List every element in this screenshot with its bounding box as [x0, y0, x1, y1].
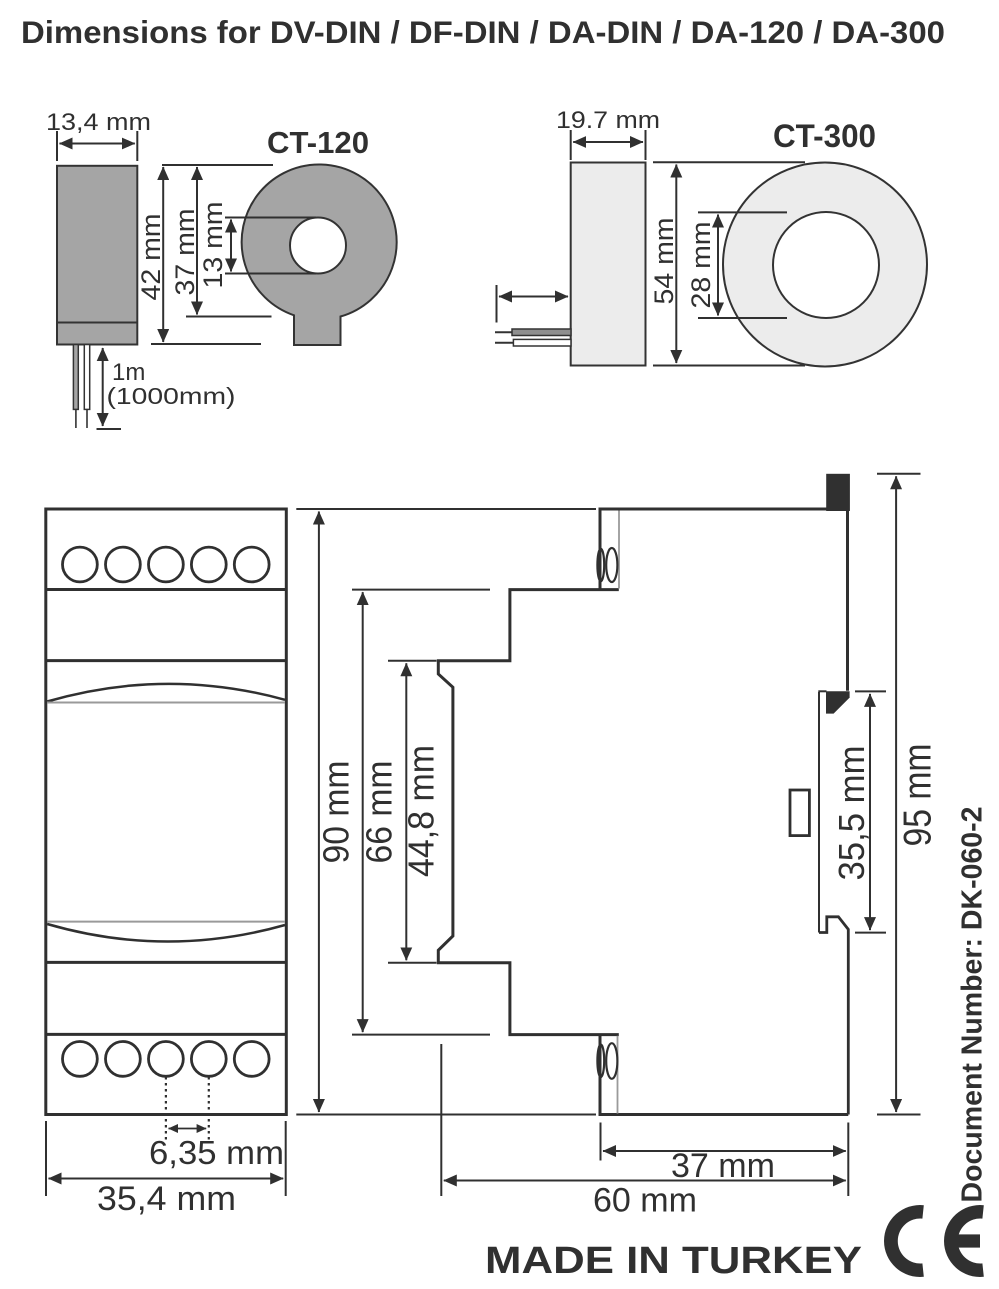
- svg-text:13,4 mm: 13,4 mm: [46, 109, 151, 136]
- svg-text:54 mm: 54 mm: [649, 218, 679, 305]
- svg-text:19.7 mm: 19.7 mm: [556, 107, 660, 134]
- svg-text:6,35 mm: 6,35 mm: [149, 1134, 284, 1171]
- svg-text:66 mm: 66 mm: [359, 761, 400, 864]
- svg-text:35,5 mm: 35,5 mm: [831, 746, 872, 881]
- svg-text:CT-300: CT-300: [773, 118, 876, 154]
- svg-text:35,4 mm: 35,4 mm: [97, 1180, 236, 1218]
- svg-text:1m: 1m: [112, 359, 145, 386]
- svg-text:(1000mm): (1000mm): [107, 383, 236, 409]
- svg-text:44,8 mm: 44,8 mm: [401, 745, 442, 877]
- svg-text:Dimensions for DV-DIN / DF-DIN: Dimensions for DV-DIN / DF-DIN / DA-DIN …: [21, 14, 945, 50]
- svg-text:MADE IN TURKEY: MADE IN TURKEY: [485, 1240, 862, 1282]
- svg-text:Document Number: DK-060-2: Document Number: DK-060-2: [957, 807, 989, 1203]
- svg-text:13 mm: 13 mm: [198, 202, 228, 289]
- svg-text:37 mm: 37 mm: [170, 209, 200, 296]
- svg-text:42 mm: 42 mm: [136, 214, 166, 301]
- svg-text:60 mm: 60 mm: [593, 1182, 697, 1220]
- svg-text:CT-120: CT-120: [267, 125, 369, 160]
- svg-text:28 mm: 28 mm: [686, 222, 716, 309]
- svg-text:90 mm: 90 mm: [316, 761, 357, 864]
- svg-text:37 mm: 37 mm: [671, 1147, 775, 1185]
- svg-text:95 mm: 95 mm: [897, 744, 940, 847]
